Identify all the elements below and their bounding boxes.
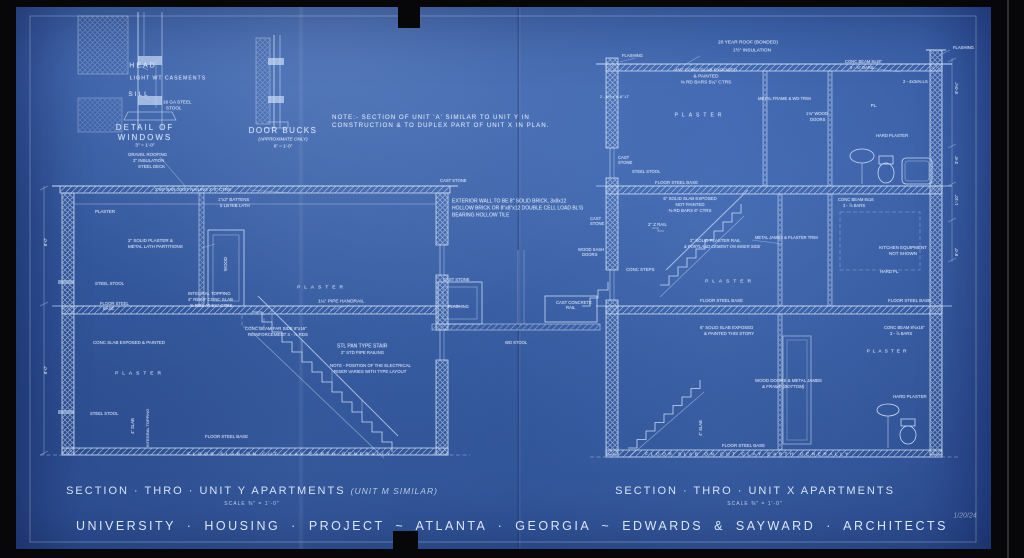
scan-background-edge (0, 0, 1024, 7)
annotation-label: PLASTER (675, 114, 726, 119)
annotation-label: NOT SHOWN (889, 252, 917, 257)
annotation-label: 20 YEAR ROOF (BONDED) (718, 42, 778, 47)
annotation-label: 3'-6" (955, 156, 959, 164)
annotation-label: 4" REINF CONC SLAB (188, 298, 233, 302)
annotation-label: 8'-0¼" (955, 82, 959, 94)
annotation-label: & PAINTED THIS STORY (704, 332, 754, 336)
annotation-label: STONE (618, 161, 632, 165)
annotation-label: 1'-10" (955, 195, 959, 206)
annotation-label: 1¼" PIPE HANDRAIL (318, 301, 364, 306)
annotation-label: & PORTLAND CEMENT ON INNER SIDE (684, 245, 760, 249)
annotation-label: CAST STONE (440, 179, 467, 183)
annotation-label: PLASTER (867, 351, 910, 356)
annotation-label: HARD PLASTER (876, 134, 908, 138)
annotation-label: 6" SOLID SLAB EXPOSED (663, 197, 716, 201)
annotation-label: FLOOR STEEL BASE (205, 435, 248, 439)
annotation-label: 16 GA STEEL (163, 101, 192, 106)
annotation-label: 2 - 4x3x⅜ LS (903, 80, 928, 84)
annotation-label: DETAIL OF (116, 124, 174, 132)
annotation-label: DOORS (810, 118, 825, 122)
annotation-label: 2" Z RAIL (648, 223, 667, 227)
annotation-label: 2" INSULATION (133, 159, 164, 163)
annotation-label: 4" SLAB (131, 418, 135, 434)
annotation-label: 1"x2" BATTENS (218, 198, 249, 202)
annotation-label: HARD PL. (880, 270, 899, 274)
sheet-main-title: UNIVERSITY · HOUSING · PROJECT ~ ATLANTA… (76, 519, 948, 533)
annotation-label: STONE (590, 222, 604, 226)
annotation-label: PLASTER (705, 281, 755, 286)
annotation-label: 1½" INSULATION (733, 50, 771, 55)
annotation-label: FLOOR SLAB ON CUT CLAY EARTH GENERALLY (645, 454, 850, 459)
annotation-label: HOLLOW BRICK OR 8"x8"x12 DOUBLE CELL LOA… (452, 207, 583, 212)
annotation-label: 8'-0" (955, 248, 959, 256)
left-section-scale: SCALE ⅜" = 1'-0" (224, 501, 279, 507)
annotation-label: 8'-0" (44, 238, 48, 246)
annotation-label: (APPROXIMATE ONLY) (258, 138, 307, 143)
annotation-label: STEEL STOOL (95, 282, 124, 286)
annotation-label: METAL JAMBS & PLASTER TRIM (755, 236, 818, 240)
annotation-label: & FRAME (BOTTOM) (762, 385, 804, 389)
annotation-label: STEEL STOOL (632, 170, 660, 174)
annotation-label: CONC BEAM 8x16 (838, 198, 874, 202)
annotation-label: ⅜ RD BARS 5¼" CTRS (681, 82, 732, 87)
annotation-label: NOT PAINTED (675, 203, 704, 207)
annotation-label: 2"x6" BAR JOIST NAILING 2'-0" CTRS (155, 188, 231, 192)
annotation-label: 2" SOLID PLASTER RAIL (690, 239, 741, 243)
annotation-label: STOOL (166, 107, 182, 112)
annotation-label: PLASTER (95, 210, 115, 214)
annotation-label: LIGHT WT CASEMENTS (130, 76, 206, 81)
annotation-label: STEEL STOOL (90, 412, 118, 416)
annotation-label: 1⅛" WOOD (806, 112, 828, 116)
annotation-label: FLOOR STEEL BASE (655, 181, 698, 185)
annotation-label: 3 - ⅞ BARS (890, 332, 912, 336)
annotation-label: FLOOR STEEL BASE (700, 299, 743, 303)
annotation-label: CONC BEAM FAR SIDE 8"x16" (245, 327, 307, 331)
annotation-label: NOTE:- SECTION OF UNIT 'A' SIMILAR TO UN… (332, 115, 530, 121)
annotation-label: 6" SOLID SLAB EXPOSED (700, 326, 753, 330)
annotation-label: WINDOWS (118, 134, 172, 142)
annotation-label: PLASTER (115, 373, 165, 378)
annotation-label: 6" = 1'-0" (274, 145, 293, 150)
annotation-label: INTEGRAL TOPPING (188, 292, 231, 296)
left-section-title-text: SECTION · THRO · UNIT Y APARTMENTS (66, 485, 345, 497)
annotation-label: 3" = 1'-0" (135, 145, 154, 150)
annotation-label: CONC STEPS (626, 268, 655, 272)
annotation-label: WD STOOL (505, 341, 527, 345)
paper-notch (398, 0, 420, 28)
annotation-label: ⅜ RD BARS 6" CTRS (669, 209, 712, 213)
annotation-label: FLOOR STEEL BASE (722, 444, 765, 448)
annotation-label: 3 - ⅞ BARS (843, 204, 865, 208)
annotation-label: FLOOR STEEL BASE (888, 299, 931, 303)
annotation-label: 3 - ⅞" BARS (850, 66, 874, 70)
right-section-scale: SCALE ⅜" = 1'-0" (727, 501, 782, 507)
scan-background-edge (0, 0, 16, 558)
blueprint-linework (0, 0, 1024, 558)
annotation-label: CONC SLAB EXPOSED & PAINTED (93, 341, 165, 345)
annotation-label: 2" SOLID PLASTER & (128, 239, 173, 244)
annotation-label: 5 LB RIB LATH (220, 204, 250, 208)
annotation-label: METAL FRAME & WD TRIM (758, 97, 811, 101)
annotation-label: FLASHING (448, 305, 469, 309)
scanner-artifact (1007, 0, 1009, 558)
annotation-label: PLASTER (297, 287, 347, 292)
annotation-label: STEEL DECK (138, 165, 165, 169)
annotation-label: 2" STD PIPE RAILING (341, 351, 384, 355)
annotation-label: HEAD (129, 63, 156, 70)
annotation-label: WOOD (224, 257, 228, 271)
annotation-label: BEARING HOLLOW TILE (452, 214, 509, 219)
annotation-label: CONC BEAM 8x16" (845, 60, 882, 64)
annotation-label: INTEGRAL TOPPING (146, 409, 150, 448)
annotation-label: WOOD DOORS & METAL JAMBS (755, 379, 822, 383)
annotation-label: GRAVEL ROOFING (128, 153, 167, 157)
annotation-label: HARD PLASTER (893, 395, 927, 399)
scan-background-edge (0, 549, 1024, 558)
annotation-label: 4" SLAB (699, 420, 703, 436)
paper-notch (393, 531, 418, 558)
annotation-label: FLOOR SLAB ON CUT CLAY EARTH GENERALLY (187, 454, 392, 459)
annotation-label: DOOR BUCKS (249, 127, 318, 135)
annotation-label: FLASHING (953, 46, 974, 50)
annotation-label: RAIL (566, 306, 575, 310)
annotation-label: ⅜ RDS AT 5¾" CTRS (190, 304, 232, 308)
annotation-label: PL. (871, 104, 878, 109)
right-section-title: SECTION · THRO · UNIT X APARTMENTS (615, 485, 895, 497)
blueprint-sheet: HEADLIGHT WT CASEMENTSSILL16 GA STEELSTO… (0, 0, 1024, 558)
annotation-label: FLASHING (622, 54, 643, 58)
annotation-label: DOORS (582, 253, 597, 257)
annotation-label: STL PAN TYPE STAIR (337, 345, 387, 350)
annotation-label: CAST STONE (443, 278, 470, 282)
left-section-title: SECTION · THRO · UNIT Y APARTMENTS (UNIT… (66, 485, 438, 497)
annotation-label: RISER VARIES WITH TYPE LAYOUT (334, 370, 406, 374)
annotation-label: REINFORCEMENT 3 - ⅞ RDS (248, 333, 308, 337)
annotation-label: CONSTRUCTION & TO DUPLEX PART OF UNIT X … (332, 123, 550, 129)
annotation-label: SILL (128, 92, 149, 99)
annotation-label: CONC BEAM 8½x16" (884, 326, 925, 330)
annotation-label: METAL LATH PARTITIONS (128, 245, 183, 250)
annotation-label: BASE (103, 307, 114, 311)
annotation-label: KITCHEN EQUIPMENT (879, 246, 927, 251)
annotation-label: 8'-0" (44, 366, 48, 374)
date-mark: 1/20/24 (953, 513, 976, 520)
left-section-subtitle: (UNIT M SIMILAR) (351, 486, 438, 496)
annotation-label: NOTE - POSITION OF THE ELECTRICAL (330, 364, 411, 368)
annotation-label: EXTERIOR WALL TO BE 8" SOLID BRICK, 3x8x… (452, 200, 566, 205)
annotation-label: 2 - 8½ x 9'-6" LT (600, 95, 629, 99)
